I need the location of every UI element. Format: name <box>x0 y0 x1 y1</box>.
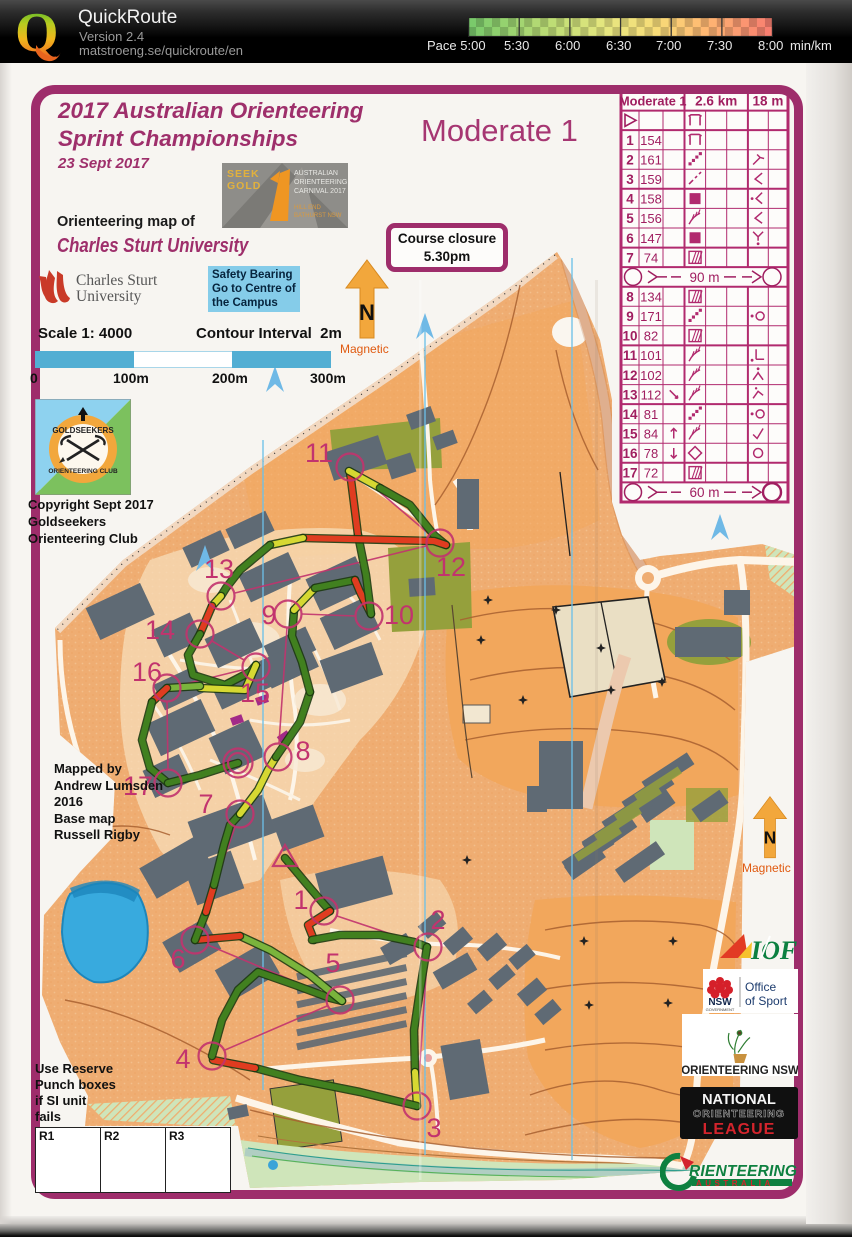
svg-text:ORIENTEERING: ORIENTEERING <box>294 179 347 186</box>
svg-text:N: N <box>764 828 776 848</box>
svg-text:ORIENTEERING CLUB: ORIENTEERING CLUB <box>48 468 118 475</box>
svg-text:GOVERNMENT: GOVERNMENT <box>706 1007 735 1012</box>
svg-text:University: University <box>76 288 142 305</box>
svg-text:LEAGUE: LEAGUE <box>703 1121 776 1138</box>
svg-text:SEEK: SEEK <box>227 168 260 180</box>
svg-text:HILL END: HILL END <box>294 205 321 211</box>
svg-text:AUSTRALIA: AUSTRALIA <box>696 1179 774 1188</box>
svg-text:Office: Office <box>745 980 776 994</box>
svg-text:ORIENTEERING NSW: ORIENTEERING NSW <box>682 1065 798 1076</box>
svg-text:CARNIVAL 2017: CARNIVAL 2017 <box>294 188 346 195</box>
svg-text:ORIENTEERING: ORIENTEERING <box>693 1108 785 1120</box>
svg-text:Charles Sturt: Charles Sturt <box>76 272 158 289</box>
svg-text:NATIONAL: NATIONAL <box>702 1092 776 1108</box>
svg-text:of Sport: of Sport <box>745 994 788 1008</box>
svg-text:GOLDSEEKERS: GOLDSEEKERS <box>52 426 114 435</box>
svg-text:IOF: IOF <box>750 936 797 964</box>
svg-text:GOLD: GOLD <box>227 180 261 192</box>
svg-text:AUSTRALIAN: AUSTRALIAN <box>294 170 338 177</box>
svg-text:BATHURST NSW: BATHURST NSW <box>294 213 342 219</box>
svg-text:N: N <box>359 300 375 325</box>
svg-text:RIENTEERING: RIENTEERING <box>689 1163 797 1180</box>
